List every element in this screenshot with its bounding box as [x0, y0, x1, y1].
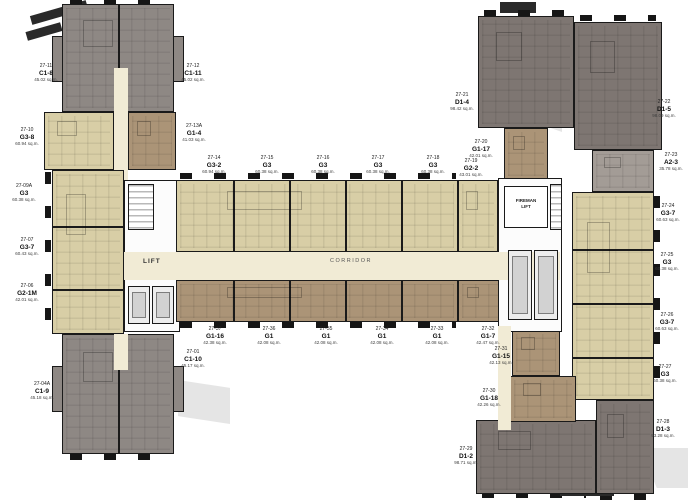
unit-label-27-17: 27-17G360.38 sq.m.	[356, 156, 400, 174]
unit-label-27-35: 27-35G142.08 sq.m.	[304, 327, 348, 345]
block-left-wing-g3	[52, 170, 124, 334]
unit-label-27-09A: 27-09AG360.38 sq.m.	[2, 184, 46, 202]
unit-divider	[345, 181, 347, 251]
unit-label-27-06: 27-06G2-1M42.01 sq.m.	[5, 284, 49, 302]
block-d1-5	[574, 22, 662, 150]
corridor	[124, 252, 560, 280]
unit-label-27-36: 27-36G142.08 sq.m.	[247, 327, 291, 345]
unit-label-27-21: 27-21D1-498.42 sq.m.	[440, 93, 484, 111]
block-cross-wing	[173, 366, 184, 412]
unit-label-27-31: 27-31G1-1542.13 sq.m.	[479, 347, 523, 365]
unit-divider	[401, 181, 403, 251]
drop-shadow	[178, 380, 230, 424]
block-right-wing-g3	[572, 192, 654, 400]
balcony-ticks	[180, 173, 456, 179]
circulation-strip	[114, 334, 128, 370]
block-g1-17	[504, 128, 548, 180]
unit-divider	[233, 181, 235, 251]
unit-label-27-37: 27-37G1-1642.38 sq.m.	[193, 327, 237, 345]
unit-label-27-11: 27-11C1-845.02 sq.m.	[24, 64, 68, 82]
unit-label-27-24: 27-24G3-760.63 sq.m.	[646, 204, 689, 222]
floor-plan: FIREMAN LIFT LIFT CORRIDOR 27-11C1-845.0…	[0, 0, 689, 500]
unit-label-27-23: 27-23A2-335.78 sq.m.	[649, 153, 689, 171]
lift-shaft	[128, 286, 150, 324]
unit-label-27-33: 27-33G142.08 sq.m.	[415, 327, 459, 345]
unit-divider	[289, 181, 291, 251]
unit-divider	[401, 281, 403, 321]
lift-shaft	[534, 250, 558, 320]
fireman-lift: FIREMAN LIFT	[504, 186, 548, 228]
circulation-strip	[114, 68, 128, 182]
block-bottom-row-g1	[176, 280, 458, 322]
unit-label-27-04A: 27-04AC1-945.18 sq.m.	[20, 382, 64, 400]
block-top-row-g3	[176, 180, 458, 252]
corridor-label: CORRIDOR	[330, 258, 372, 264]
block-g3-8	[44, 112, 114, 170]
unit-divider	[573, 357, 653, 359]
fireman-lift-label-line2: LIFT	[505, 204, 547, 210]
block-g1-7	[458, 280, 502, 322]
unit-label-27-10: 27-10G3-860.94 sq.m.	[5, 128, 49, 146]
lift-shaft	[152, 286, 174, 324]
balcony-ticks	[580, 15, 656, 21]
block-a2-3	[592, 150, 654, 192]
unit-label-27-28: 27-28D1-393.28 sq.m.	[641, 420, 685, 438]
unit-divider	[233, 281, 235, 321]
block-d1-3	[596, 400, 654, 494]
unit-divider	[573, 249, 653, 251]
unit-label-27-14: 27-14G3-260.94 sq.m.	[192, 156, 236, 174]
unit-label-27-13A: 27-13AG1-441.03 sq.m.	[172, 124, 216, 142]
unit-label-27-16: 27-16G360.38 sq.m.	[301, 156, 345, 174]
unit-label-27-27: 27-27G360.38 sq.m.	[643, 365, 687, 383]
unit-divider	[53, 226, 123, 228]
block-g1-18	[510, 376, 576, 422]
unit-label-27-22: 27-22D1-598.09 sq.m.	[642, 100, 686, 118]
unit-label-27-15: 27-15G360.38 sq.m.	[245, 156, 289, 174]
unit-label-27-07: 27-07G3-760.43 sq.m.	[5, 238, 49, 256]
lift-label: LIFT	[143, 258, 161, 265]
unit-label-27-25: 27-25G360.38 sq.m.	[645, 253, 689, 271]
unit-divider	[53, 289, 123, 291]
unit-label-27-32: 27-32G1-742.47 sq.m.	[466, 327, 510, 345]
unit-label-27-29: 27-29D1-298.71 sq.m.	[444, 447, 488, 465]
unit-divider	[345, 281, 347, 321]
unit-label-27-30: 27-30G1-1842.26 sq.m.	[467, 389, 511, 407]
staircase	[128, 184, 154, 230]
block-g2-2	[458, 180, 498, 252]
unit-label-27-20: 27-20G1-1742.01 sq.m.	[459, 140, 503, 158]
unit-label-27-34: 27-34G142.08 sq.m.	[360, 327, 404, 345]
lift-shaft	[508, 250, 532, 320]
balcony-ticks	[70, 454, 166, 460]
unit-label-27-19: 27-19G2-243.01 sq.m.	[449, 159, 493, 177]
unit-label-27-26: 27-26G3-760.63 sq.m.	[645, 313, 689, 331]
unit-label-27-12: 27-12C1-1145.02 sq.m.	[171, 64, 215, 82]
block-d1-2	[476, 420, 596, 494]
unit-divider	[289, 281, 291, 321]
staircase	[550, 184, 562, 230]
block-d1-4	[478, 16, 574, 128]
unit-divider	[573, 303, 653, 305]
unit-label-27-01: 27-01C1-1045.17 sq.m.	[171, 350, 215, 368]
block-g1-4	[128, 112, 176, 170]
